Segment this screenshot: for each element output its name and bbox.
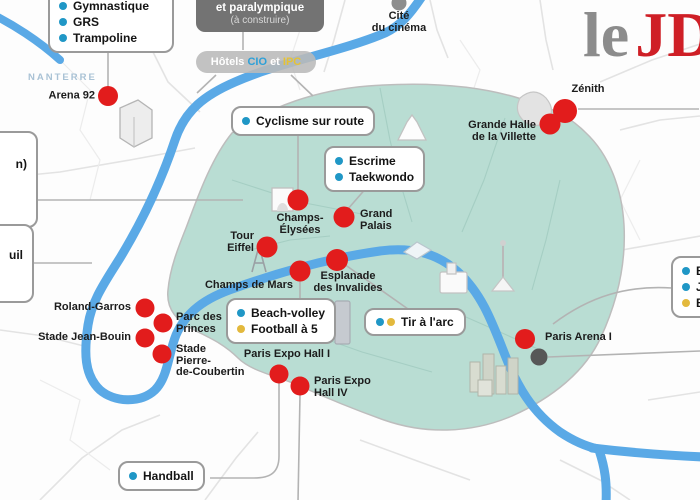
- venue-label-grande-halle: Grande Halle de la Villette: [468, 120, 536, 143]
- grs-item: GRS: [59, 14, 163, 30]
- sport-label: Handball: [143, 468, 194, 484]
- leader-expo4-bottom: [298, 395, 300, 500]
- sport-bullet-icon: [237, 309, 245, 317]
- cyclisme-box: Cyclisme sur route: [231, 106, 375, 136]
- handball-box: Handball: [118, 461, 205, 491]
- venue-label-champs-elysees: Champs- Élysées: [276, 213, 323, 236]
- sport-bullet-icon: [682, 283, 690, 291]
- sport-bullet-icon: [59, 34, 67, 42]
- beach-volley-football-box: Beach-volley Football à 5: [226, 298, 336, 344]
- village-paralympique-box: et paralympique (à construire): [196, 0, 324, 32]
- sport-label: Tir à l'arc: [401, 314, 454, 330]
- right-partial-box: B J B: [671, 256, 700, 318]
- venue-dot-tour-eiffel: [257, 237, 278, 258]
- venue-dot-paris-expo-hall1: [270, 365, 289, 384]
- region-label-nanterre: NANTERRE: [28, 72, 97, 83]
- sport-bullet-icon: [682, 299, 690, 307]
- venue-label-tour-eiffel: Tour Eiffel: [227, 231, 254, 254]
- logo-le: le: [583, 0, 629, 70]
- sport-label: Escrime: [349, 153, 396, 169]
- venue-label-arena92: Arena 92: [49, 90, 95, 102]
- sport-label: Football à 5: [251, 321, 318, 337]
- sport-bullet-icon: [335, 173, 343, 181]
- partial-label: uil: [9, 248, 23, 262]
- venue-label-grand-palais: Grand Palais: [360, 209, 392, 232]
- venue-dot-champs-elysees: [288, 190, 309, 211]
- trampoline-item: Trampoline: [59, 30, 163, 46]
- sport-bullet-icon: [682, 267, 690, 275]
- venue-label-esplanade-invalides: Esplanade des Invalides: [313, 271, 382, 294]
- sport-bullet-icon: [129, 472, 137, 480]
- logo-jdd: JD: [635, 0, 700, 70]
- paralympique-line2: (à construire): [204, 15, 316, 27]
- venue-label-paris-expo-hall1: Paris Expo Hall I: [244, 349, 330, 361]
- venue-dot-stade-jean-bouin: [136, 329, 155, 348]
- venue-dot-parc-des-princes: [154, 314, 173, 333]
- left-partial-box-bottom: uil: [0, 224, 34, 303]
- sport-label: B: [696, 295, 700, 311]
- paralympique-line1: et paralympique: [204, 2, 316, 15]
- escrime-item: Escrime: [335, 153, 414, 169]
- cio-word: CIO: [247, 56, 267, 68]
- arena92-building-icon: [120, 100, 152, 147]
- montparnasse-tower-icon: [335, 301, 350, 344]
- sport-label: Beach-volley: [251, 305, 325, 321]
- right-partial-item: B: [682, 263, 700, 279]
- marne-branch: [592, 448, 700, 457]
- hotels-word: Hôtels: [211, 56, 245, 68]
- venue-dot-roland-garros: [136, 299, 155, 318]
- sport-bullet-icon: [376, 318, 384, 326]
- gymnastique-item: Gymnastique: [59, 0, 163, 14]
- ipc-word: IPC: [283, 56, 301, 68]
- sport-bullet-icon: [335, 157, 343, 165]
- lejdd-logo: leJD: [583, 6, 700, 64]
- venue-dot-arena92: [98, 86, 118, 106]
- sport-label: B: [696, 263, 700, 279]
- venue-label-zenith: Zénith: [572, 84, 605, 96]
- venue-label-roland-garros: Roland-Garros: [54, 302, 131, 314]
- sport-label: Gymnastique: [73, 0, 149, 14]
- et-word: et: [270, 56, 280, 68]
- venue-dot-grand-palais: [334, 207, 355, 228]
- hotels-cio-ipc-box: Hôtels CIO et IPC: [196, 51, 316, 73]
- leader-expo1-handball: [210, 383, 279, 478]
- venue-label-paris-expo-hall4: Paris Expo Hall IV: [314, 376, 371, 399]
- paris-olympic-venues-map: leJD NANTERRE Gymnastique GRS Trampoline…: [0, 0, 700, 500]
- beach-volley-item: Beach-volley: [237, 305, 325, 321]
- sport-bullet-icon: [242, 117, 250, 125]
- gymnastique-box: Gymnastique GRS Trampoline: [48, 0, 174, 53]
- left-partial-box-top: n): [0, 131, 38, 228]
- sport-label: J: [696, 279, 700, 295]
- venue-dot-paris-expo-hall4: [291, 377, 310, 396]
- map-canvas: [0, 0, 700, 500]
- sport-label: Cyclisme sur route: [256, 113, 364, 129]
- right-partial-item: J: [682, 279, 700, 295]
- venue-label-champs-de-mars: Champs de Mars: [205, 280, 293, 292]
- venue-dot-paris-arena: [515, 329, 535, 349]
- venue-dot-stade-coubertin: [153, 345, 172, 364]
- venue-label-stade-coubertin: Stade Pierre- de-Coubertin: [176, 344, 244, 379]
- football5-item: Football à 5: [237, 321, 325, 337]
- venue-label-stade-jean-bouin: Stade Jean-Bouin: [38, 332, 131, 344]
- sport-bullet-icon: [387, 318, 395, 326]
- venue-label-paris-arena: Paris Arena I: [545, 332, 612, 344]
- seine-south-branch: [599, 450, 606, 500]
- leader-hotels-right: [291, 75, 313, 96]
- sport-bullet-icon: [237, 325, 245, 333]
- partial-label: n): [16, 157, 27, 171]
- venue-label-parc-des-princes: Parc des Princes: [176, 312, 222, 335]
- sport-label: GRS: [73, 14, 99, 30]
- venue-label-cite-cinema: Cité du cinéma: [372, 11, 426, 34]
- venue-dot-grande-halle: [540, 114, 561, 135]
- sport-label: Trampoline: [73, 30, 137, 46]
- venue-dot-esplanade-invalides: [326, 249, 348, 271]
- escrime-taekwondo-box: Escrime Taekwondo: [324, 146, 425, 192]
- sport-bullet-icon: [59, 2, 67, 10]
- tir-arc-box: Tir à l'arc: [364, 308, 466, 336]
- right-partial-item: B: [682, 295, 700, 311]
- sport-bullet-icon: [59, 18, 67, 26]
- taekwondo-item: Taekwondo: [335, 169, 414, 185]
- sport-label: Taekwondo: [349, 169, 414, 185]
- venue-dot-gray-bercy: [531, 349, 548, 366]
